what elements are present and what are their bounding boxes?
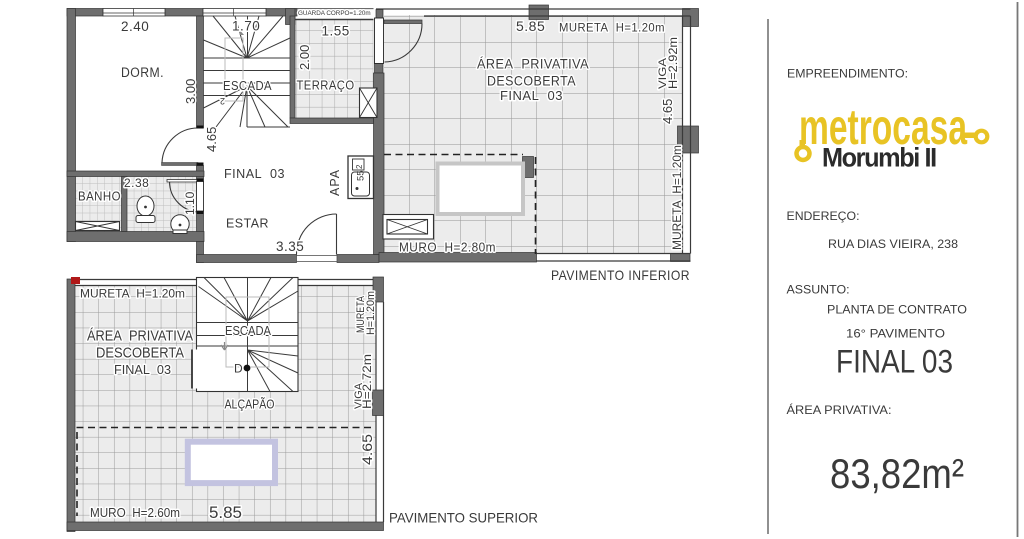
svg-text:MURETA H=1.20m: MURETA H=1.20m bbox=[559, 21, 665, 35]
svg-text:PLANTA DE CONTRATO: PLANTA DE CONTRATO bbox=[827, 305, 967, 317]
svg-text:Morumbi II: Morumbi II bbox=[822, 142, 937, 173]
svg-text:ESCADA: ESCADA bbox=[225, 323, 271, 338]
svg-text:GUARDA CORPO=1.20m: GUARDA CORPO=1.20m bbox=[298, 10, 371, 17]
svg-text:APA: APA bbox=[328, 169, 342, 196]
svg-text:ALÇAPÃO: ALÇAPÃO bbox=[225, 397, 275, 412]
svg-text:1.10: 1.10 bbox=[183, 191, 197, 215]
svg-text:2.40: 2.40 bbox=[121, 19, 149, 34]
svg-text:1.70: 1.70 bbox=[232, 19, 260, 34]
svg-text:MURETA H=1.20m: MURETA H=1.20m bbox=[80, 287, 185, 301]
svg-text:RUA DIAS VIEIRA, 238: RUA DIAS VIEIRA, 238 bbox=[828, 239, 958, 251]
svg-text:2: 2 bbox=[355, 164, 364, 169]
svg-text:H=2.92m: H=2.92m bbox=[668, 37, 680, 89]
svg-text:MURO H=2.60m: MURO H=2.60m bbox=[90, 505, 180, 520]
svg-text:3.35: 3.35 bbox=[276, 239, 304, 254]
svg-text:16° PAVIMENTO: 16° PAVIMENTO bbox=[846, 329, 945, 341]
svg-text:3.00: 3.00 bbox=[183, 79, 198, 104]
svg-text:D: D bbox=[234, 362, 243, 376]
svg-text:DORM.: DORM. bbox=[121, 65, 164, 80]
svg-text:EMPREENDIMENTO:: EMPREENDIMENTO: bbox=[787, 69, 908, 81]
svg-text:ENDEREÇO:: ENDEREÇO: bbox=[787, 211, 860, 223]
svg-text:ÁREA PRIVATIVA: ÁREA PRIVATIVA bbox=[87, 328, 193, 345]
svg-text:2.00: 2.00 bbox=[297, 45, 312, 70]
svg-text:PAVIMENTO SUPERIOR: PAVIMENTO SUPERIOR bbox=[389, 510, 538, 526]
svg-text:4.65: 4.65 bbox=[360, 434, 375, 465]
svg-text:83,82m²: 83,82m² bbox=[830, 450, 964, 497]
svg-text:H=2.72m: H=2.72m bbox=[360, 354, 374, 409]
svg-text:DESCOBERTA: DESCOBERTA bbox=[487, 73, 576, 89]
svg-text:55: 55 bbox=[356, 170, 367, 181]
svg-text:FINAL 03: FINAL 03 bbox=[224, 166, 285, 181]
svg-text:2.38: 2.38 bbox=[124, 176, 149, 190]
svg-text:BANHO: BANHO bbox=[78, 190, 121, 204]
svg-text:ÁREA PRIVATIVA:: ÁREA PRIVATIVA: bbox=[787, 404, 892, 417]
svg-text:2: 2 bbox=[220, 96, 225, 106]
svg-text:ÁREA PRIVATIVA: ÁREA PRIVATIVA bbox=[477, 56, 589, 72]
svg-text:TERRAÇO: TERRAÇO bbox=[297, 78, 355, 93]
svg-text:5.85: 5.85 bbox=[209, 504, 242, 522]
svg-text:FINAL 03: FINAL 03 bbox=[114, 362, 171, 377]
svg-text:MURETA H=1.20m: MURETA H=1.20m bbox=[670, 145, 684, 250]
svg-text:PAVIMENTO INFERIOR: PAVIMENTO INFERIOR bbox=[551, 267, 690, 283]
svg-text:1.55: 1.55 bbox=[322, 24, 350, 39]
svg-text:H=1.20m: H=1.20m bbox=[365, 291, 377, 335]
svg-text:ESTAR: ESTAR bbox=[226, 217, 269, 231]
svg-text:ESCADA: ESCADA bbox=[223, 78, 272, 93]
svg-text:FINAL 03: FINAL 03 bbox=[836, 344, 953, 380]
svg-text:FINAL 03: FINAL 03 bbox=[500, 88, 563, 103]
svg-text:4.65: 4.65 bbox=[204, 127, 219, 152]
svg-text:ASSUNTO:: ASSUNTO: bbox=[787, 285, 850, 297]
svg-text:MURO H=2.80m: MURO H=2.80m bbox=[399, 240, 496, 255]
svg-text:5.85: 5.85 bbox=[516, 18, 545, 34]
svg-text:DESCOBERTA: DESCOBERTA bbox=[96, 346, 184, 362]
svg-text:4.65: 4.65 bbox=[660, 99, 675, 124]
